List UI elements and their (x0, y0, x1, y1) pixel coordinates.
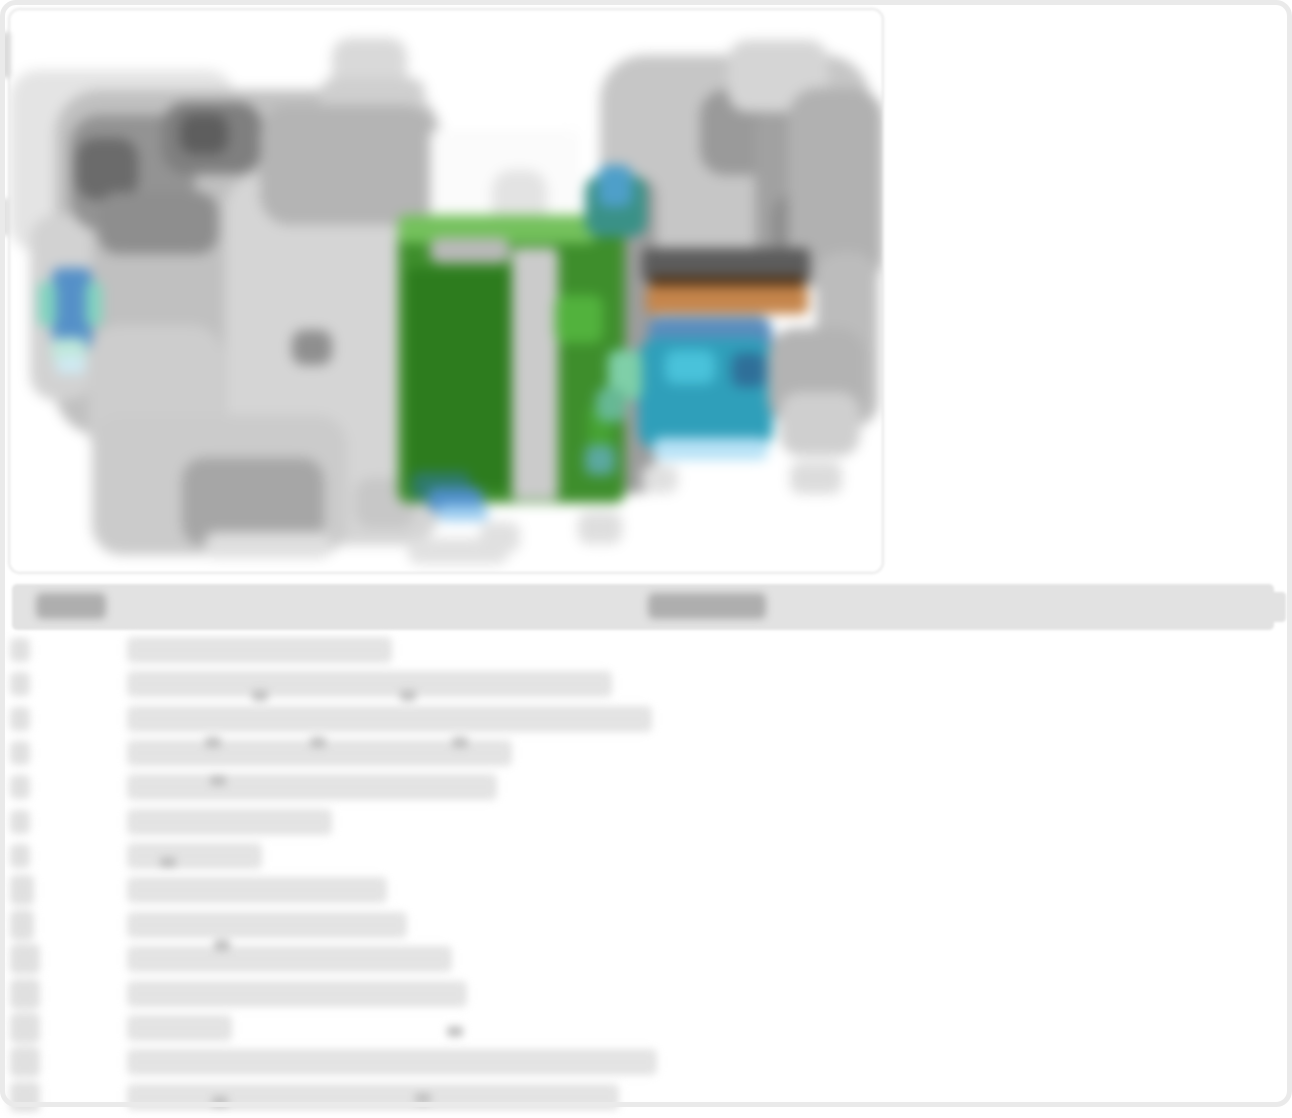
table-row (0, 637, 1292, 671)
row-number-redacted (10, 1047, 40, 1077)
row-number-redacted (10, 775, 30, 799)
table-row (0, 843, 1292, 877)
table-row (0, 809, 1292, 843)
row-number-redacted (10, 1013, 40, 1043)
text-speck (415, 1093, 431, 1104)
row-description-redacted (127, 1015, 232, 1041)
row-number-redacted (10, 944, 40, 974)
row-description-redacted (127, 912, 407, 938)
row-number-redacted (10, 979, 40, 1009)
row-number-redacted (10, 910, 34, 940)
table-row (0, 671, 1292, 705)
table-row (0, 1015, 1292, 1049)
row-description-redacted (127, 706, 652, 732)
table-row (0, 946, 1292, 980)
row-number-redacted (10, 875, 34, 905)
table-row (0, 706, 1292, 740)
table-row (0, 1049, 1292, 1083)
rows-layer (0, 0, 1292, 1107)
row-number-redacted (10, 672, 30, 696)
table-row (0, 774, 1292, 808)
text-speck (447, 1026, 463, 1037)
text-speck (214, 940, 230, 951)
table-row (0, 1084, 1292, 1118)
text-speck (252, 690, 268, 701)
text-speck (310, 737, 326, 748)
table-row (0, 740, 1292, 774)
text-speck (212, 1096, 228, 1107)
row-number-redacted (10, 844, 30, 868)
row-description-redacted (127, 1049, 657, 1075)
text-speck (452, 737, 468, 748)
row-description-redacted (127, 843, 262, 869)
text-speck (160, 857, 176, 868)
text-speck (205, 737, 221, 748)
row-description-redacted (127, 1084, 619, 1110)
row-number-redacted (10, 1082, 40, 1112)
table-row (0, 912, 1292, 946)
row-description-redacted (127, 877, 387, 903)
text-speck (400, 690, 416, 701)
table-row (0, 981, 1292, 1015)
row-description-redacted (127, 774, 497, 800)
row-number-redacted (10, 741, 30, 765)
row-description-redacted (127, 637, 392, 663)
row-description-redacted (127, 946, 452, 972)
row-description-redacted (127, 671, 612, 697)
row-description-redacted (127, 809, 332, 835)
page-content (0, 0, 1292, 1107)
row-number-redacted (10, 707, 30, 731)
table-row (0, 877, 1292, 911)
text-speck (210, 775, 226, 786)
row-number-redacted (10, 638, 30, 662)
row-number-redacted (10, 810, 30, 834)
row-description-redacted (127, 981, 467, 1007)
